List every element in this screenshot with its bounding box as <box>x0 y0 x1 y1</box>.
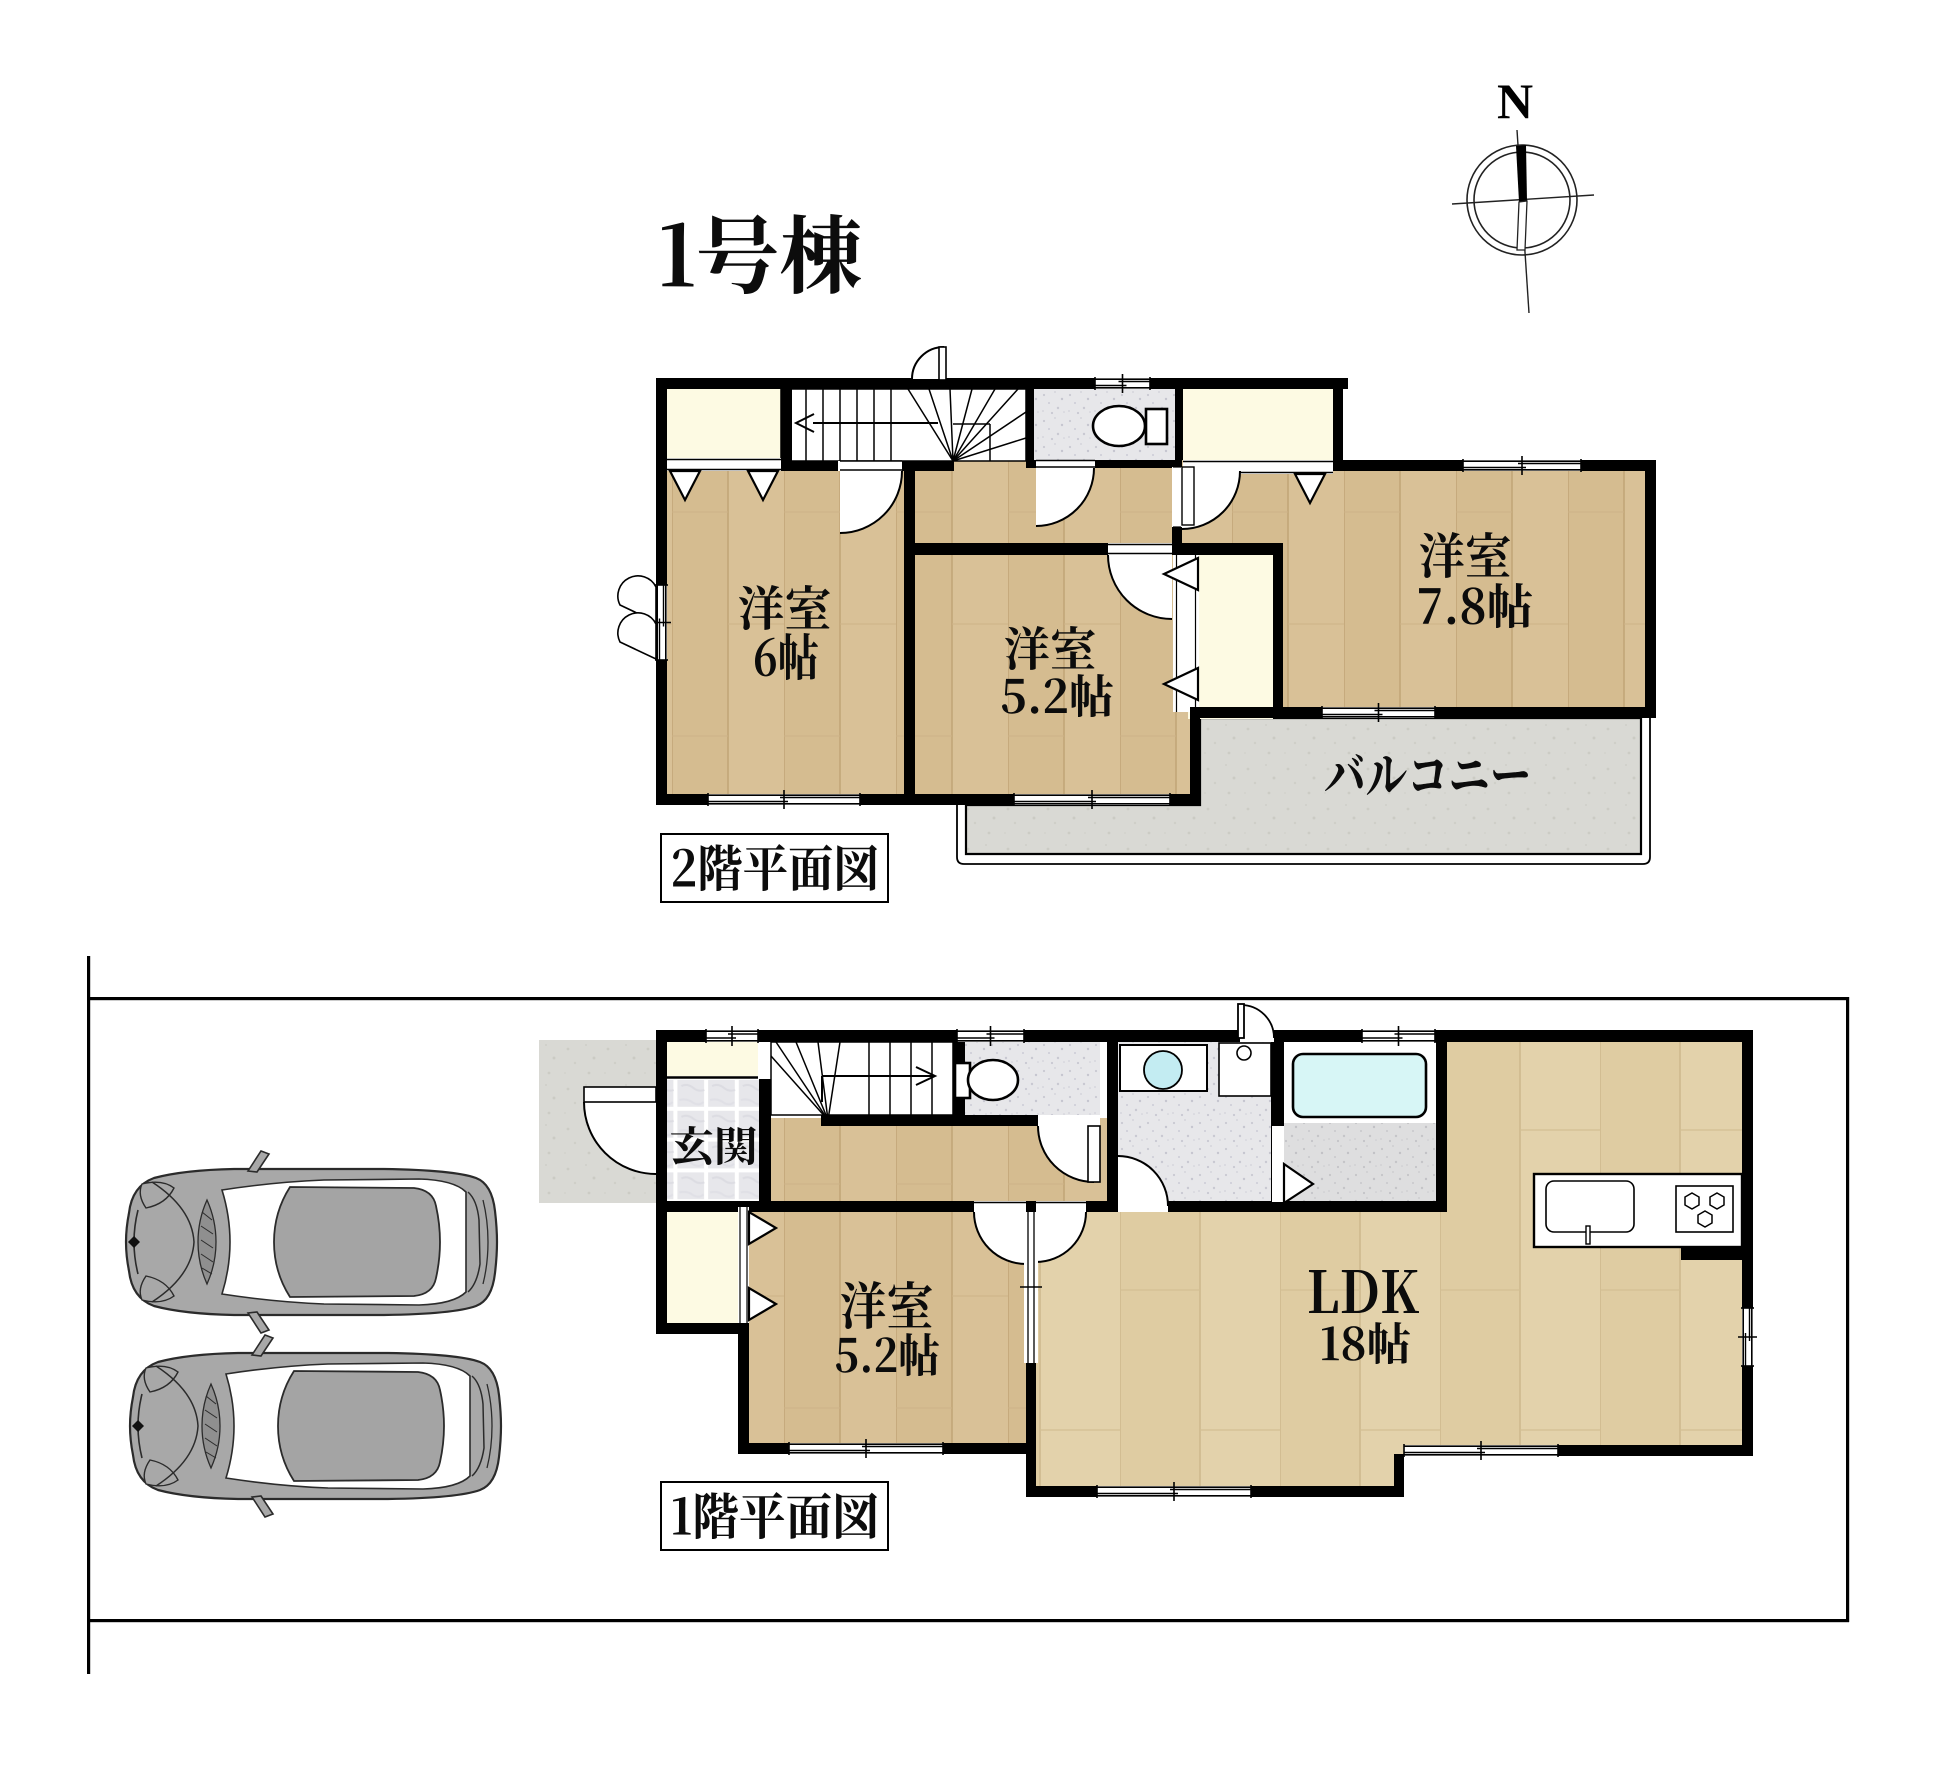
svg-text:N: N <box>1497 73 1533 129</box>
